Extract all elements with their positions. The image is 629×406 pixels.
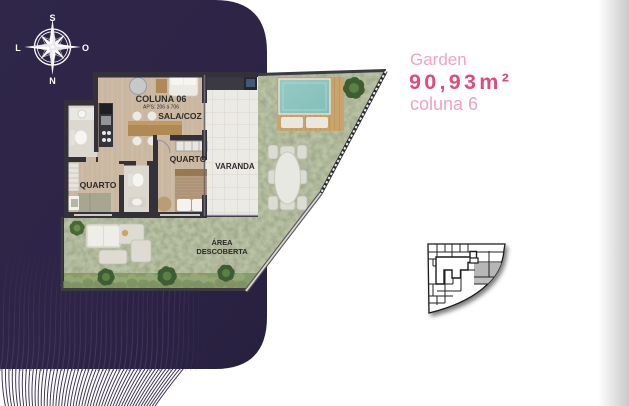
svg-text:O: O bbox=[82, 43, 89, 53]
svg-text:Garden: Garden bbox=[410, 50, 467, 69]
svg-text:QUARTO: QUARTO bbox=[80, 180, 117, 190]
svg-text:AP'S: 206 á 706: AP'S: 206 á 706 bbox=[143, 105, 179, 111]
svg-text:COLUNA 06: COLUNA 06 bbox=[136, 94, 187, 104]
svg-text:ÁREA: ÁREA bbox=[212, 238, 234, 247]
svg-text:VARANDA: VARANDA bbox=[215, 162, 255, 171]
svg-text:coluna 6: coluna 6 bbox=[410, 94, 478, 114]
svg-text:90,93m²: 90,93m² bbox=[409, 70, 512, 94]
svg-text:DESCOBERTA: DESCOBERTA bbox=[196, 247, 248, 256]
svg-text:S: S bbox=[49, 13, 55, 23]
svg-text:L: L bbox=[15, 43, 21, 53]
svg-text:QUARTO: QUARTO bbox=[170, 154, 207, 164]
svg-text:SALA/COZ: SALA/COZ bbox=[158, 111, 201, 121]
svg-text:N: N bbox=[49, 76, 56, 86]
